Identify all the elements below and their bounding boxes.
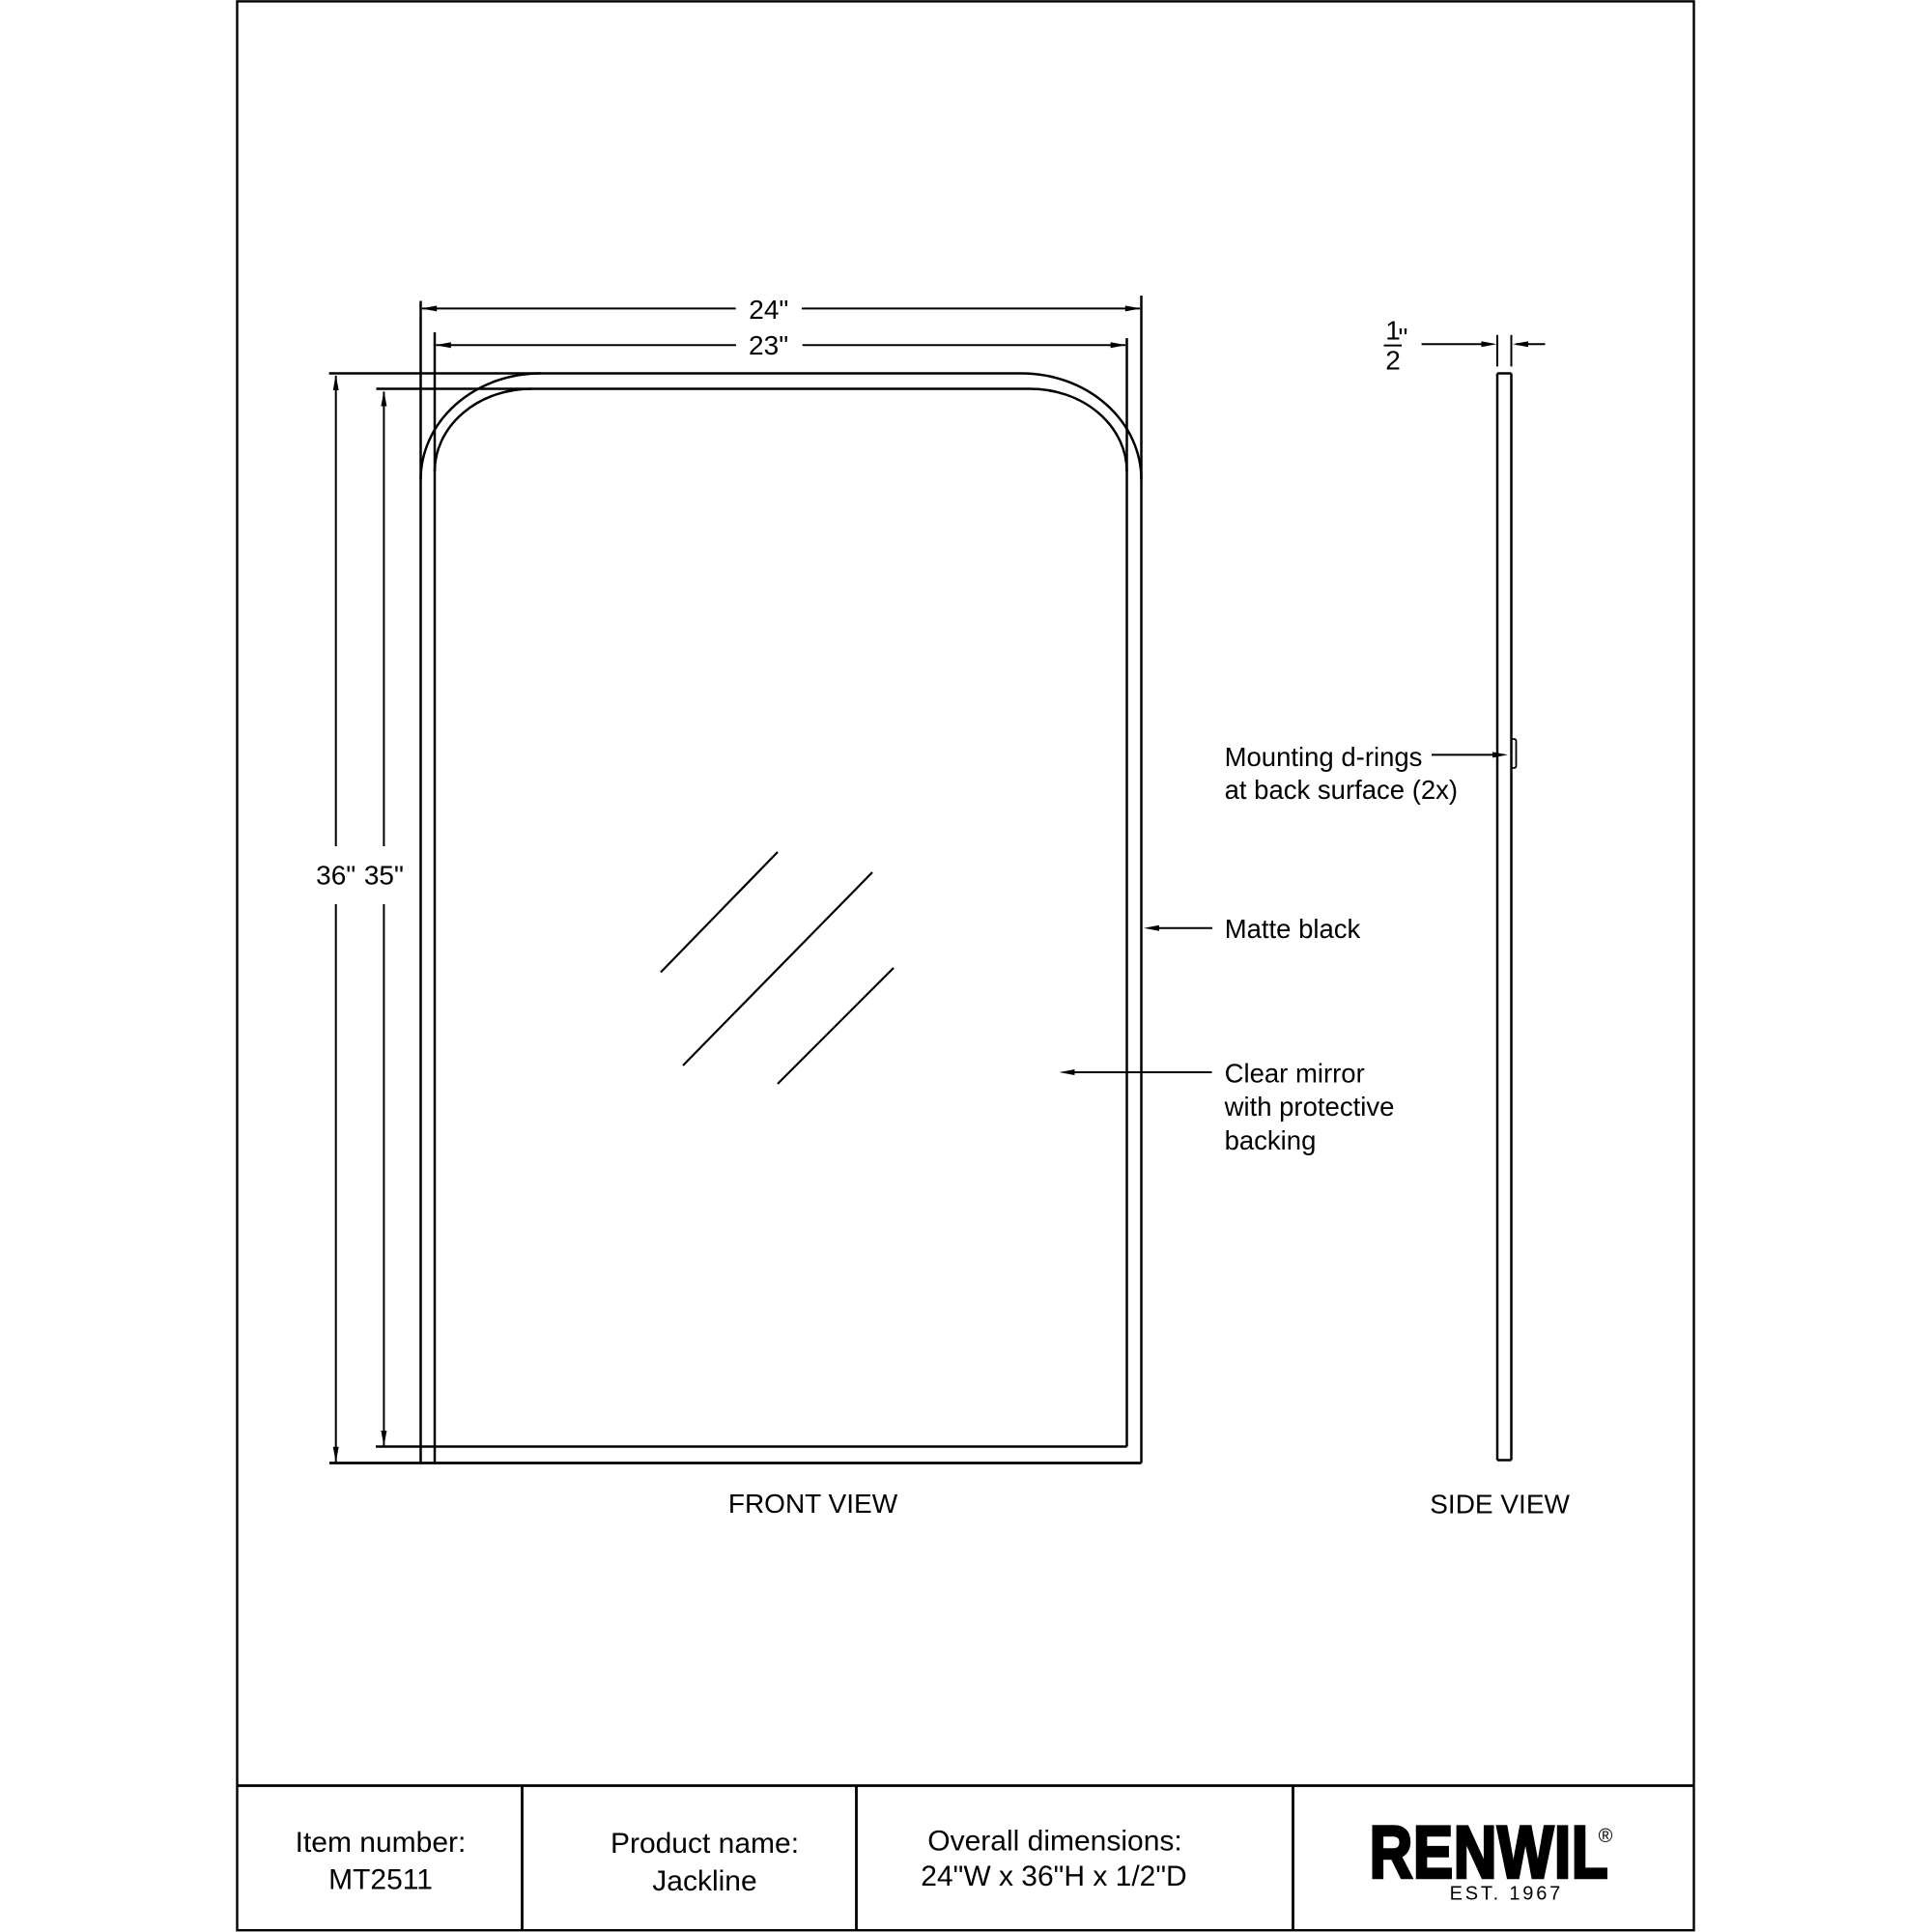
svg-text:SIDE VIEW: SIDE VIEW [1430,1490,1570,1520]
svg-text:FRONT VIEW: FRONT VIEW [728,1489,898,1519]
svg-text:23": 23" [749,330,788,360]
svg-text:Product name:: Product name: [611,1828,799,1860]
svg-text:EST. 1967: EST. 1967 [1450,1884,1564,1905]
svg-text:backing: backing [1225,1125,1317,1155]
svg-text:Clear mirror: Clear mirror [1225,1059,1365,1089]
svg-text:Mounting d-rings: Mounting d-rings [1225,742,1423,772]
svg-text:24": 24" [749,295,788,325]
svg-text:Overall dimensions:: Overall dimensions: [927,1825,1181,1857]
svg-text:MT2511: MT2511 [328,1864,433,1896]
svg-text:24"W x 36"H x 1/2"D: 24"W x 36"H x 1/2"D [921,1861,1186,1892]
svg-text:Matte black: Matte black [1225,914,1361,944]
svg-text:Jackline: Jackline [652,1865,756,1897]
svg-text:35": 35" [364,861,404,891]
svg-text:at back surface (2x): at back surface (2x) [1225,775,1458,805]
svg-text:®: ® [1599,1826,1613,1847]
svg-text:Item number:: Item number: [296,1827,467,1859]
svg-text:36": 36" [316,861,355,891]
svg-text:RENWIL: RENWIL [1370,1810,1609,1893]
svg-text:": " [1399,323,1408,353]
svg-text:with protective: with protective [1224,1092,1395,1122]
